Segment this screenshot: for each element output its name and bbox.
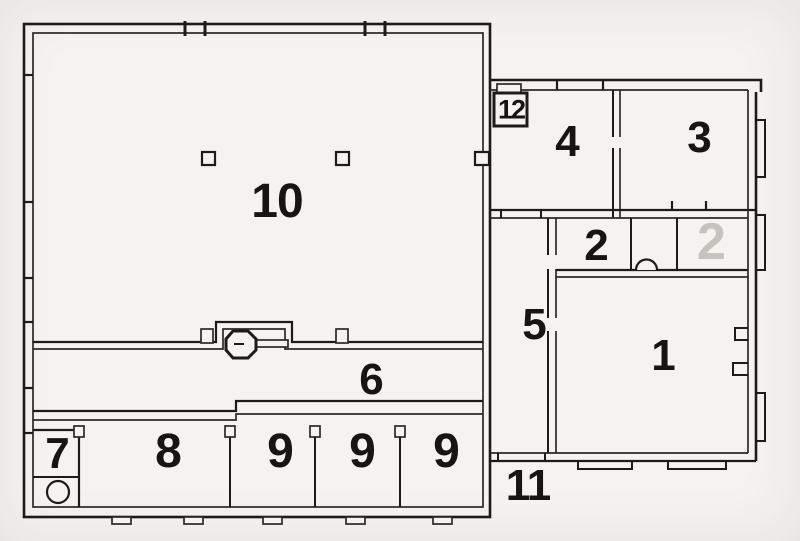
door-arc-icon: [636, 260, 657, 271]
room-label-12: 12: [498, 97, 524, 124]
wall-room4-room3: [610, 90, 622, 218]
room-label-6: 6: [359, 358, 382, 402]
wing-right-wall: [748, 90, 765, 461]
room-label-2-muted: 2: [697, 216, 725, 268]
corridor-6-bottom-wall: [33, 401, 483, 420]
room-label-9-middle: 9: [349, 428, 375, 476]
room-label-1: 1: [651, 334, 674, 378]
wing-top-wall: [490, 80, 761, 92]
floor-plan-page: 10 6 7 8 9 9 9 12 4 3 2 2 5 1 11: [0, 0, 800, 541]
main-building-outline: [24, 24, 490, 517]
room-1-wall-niches: [733, 328, 748, 375]
room-9-partitions: [225, 426, 405, 507]
room-label-9-left: 9: [267, 428, 293, 476]
toilet-circle-icon: [47, 481, 69, 503]
corridor-5-wall: [545, 218, 559, 453]
room-label-5: 5: [522, 303, 545, 347]
room-label-3: 3: [687, 116, 710, 160]
room-label-8: 8: [155, 428, 181, 476]
room-label-9-right: 9: [433, 428, 459, 476]
room-label-10: 10: [251, 178, 302, 226]
room-label-7: 7: [45, 432, 68, 476]
room-label-2: 2: [584, 224, 607, 268]
floor-plan-drawing: [0, 0, 800, 541]
wall-ticks-left-wall: [24, 75, 33, 433]
room-label-4: 4: [555, 120, 578, 164]
structural-column-icons: [202, 152, 489, 165]
room-10-bottom-wall: [33, 322, 483, 358]
rod-detail: [254, 340, 288, 347]
room-label-11: 11: [506, 464, 551, 508]
